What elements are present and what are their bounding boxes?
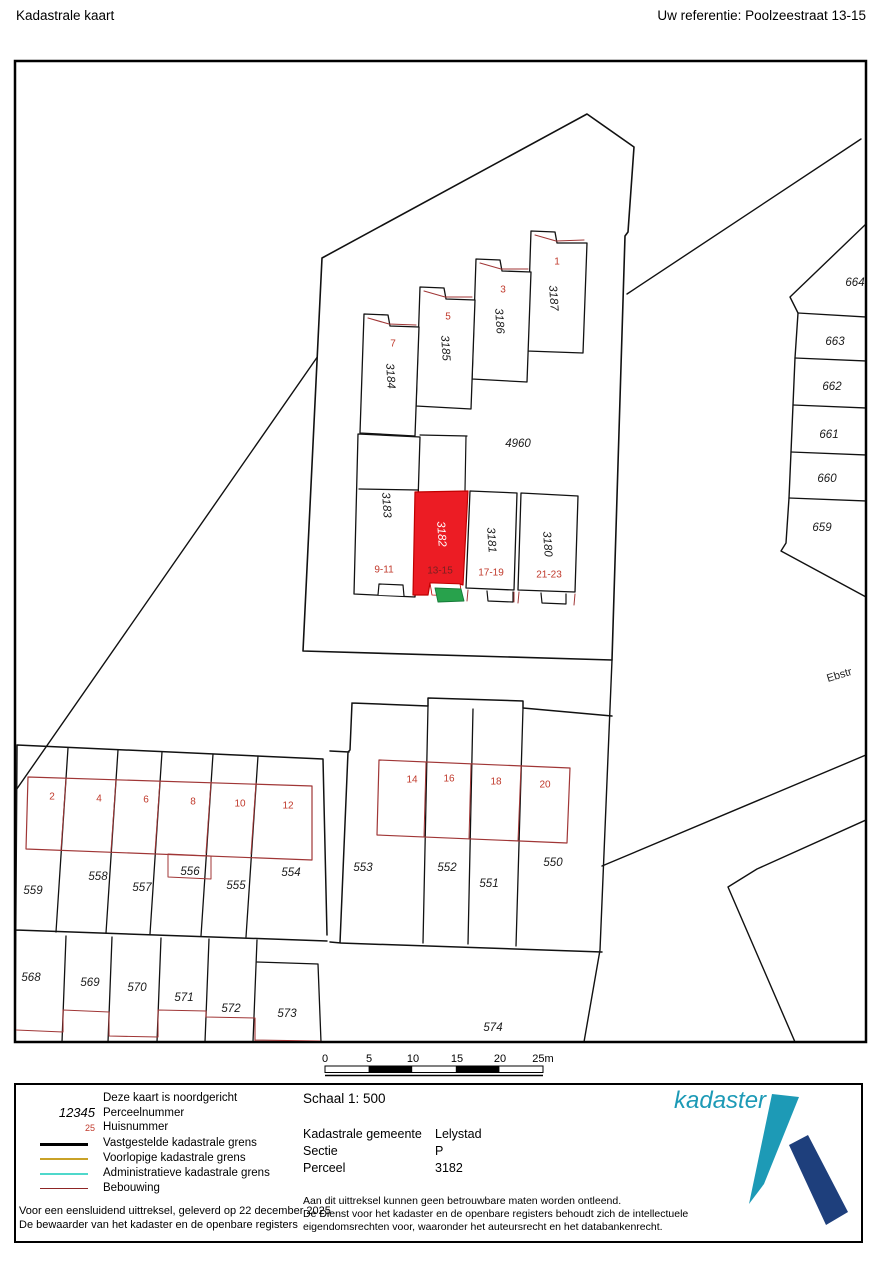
legend-north-note: Deze kaart is noordgericht [103, 1092, 237, 1104]
green-area [435, 588, 464, 602]
parcel-number: 557 [132, 882, 152, 894]
legend-established-label: Vastgestelde kadastrale grens [103, 1137, 257, 1149]
scale-bar: 0 5 10 15 20 25m [322, 1053, 554, 1076]
parcel-number: 3185 [438, 335, 452, 362]
house-number: 20 [539, 780, 551, 791]
parcel-number: 664 [845, 277, 864, 289]
parcel-number: 3183 [379, 492, 393, 519]
parcel-number: 559 [23, 885, 43, 897]
parcel-3183-step-notch [378, 584, 404, 596]
house-number: 21-23 [536, 570, 562, 581]
parcel-number: 558 [88, 871, 108, 883]
selected-house-number: 13-15 [427, 566, 453, 577]
info-row-label: Perceel [303, 1161, 345, 1175]
legend-housenumber-sample: 25 [40, 1123, 95, 1133]
house-number: 12 [282, 801, 294, 812]
scale-tick: 10 [407, 1053, 419, 1065]
parcel-number: 662 [822, 381, 842, 393]
scale-bar-track [325, 1066, 543, 1073]
info-row-label: Kadastrale gemeente [303, 1127, 422, 1141]
house-number: 3 [500, 285, 506, 296]
cadastral-map: Ebstr 1 3 5 7 3187 3186 3185 3184 3183 9… [0, 0, 881, 1269]
scale-label: Schaal 1: 500 [303, 1091, 386, 1106]
info-row-value: 3182 [435, 1161, 463, 1175]
house-number: 5 [445, 312, 451, 323]
info-row-label: Sectie [303, 1144, 338, 1158]
parcel-number: 554 [281, 867, 300, 879]
selected-parcel-number: 3182 [434, 521, 448, 548]
parcel-number: 3186 [492, 308, 506, 335]
parcel-number: 661 [819, 429, 838, 441]
scale-tick: 25m [532, 1053, 553, 1065]
parcel-number: 574 [483, 1022, 502, 1034]
legend-line-provisional [40, 1158, 88, 1160]
scale-bar-segment [456, 1066, 500, 1073]
scale-tick: 20 [494, 1053, 506, 1065]
house-number: 17-19 [478, 568, 504, 579]
parcel-number: 571 [174, 992, 193, 1004]
legend-administrative-label: Administratieve kadastrale grens [103, 1167, 270, 1179]
parcel-number: 3180 [540, 531, 554, 558]
info-row-value: P [435, 1144, 443, 1158]
legend-line-established [40, 1143, 88, 1146]
house-number: 16 [443, 774, 455, 785]
info-row-value: Lelystad [435, 1127, 482, 1141]
parcel-number: 3181 [484, 527, 498, 553]
certification-line: De bewaarder van het kadaster en de open… [19, 1219, 298, 1231]
house-number: 14 [406, 775, 418, 786]
scale-tick: 15 [451, 1053, 463, 1065]
parcel-number: 550 [543, 857, 563, 869]
legend-parcelnumber-sample: 12345 [40, 1105, 95, 1120]
disclaimer-line: eigendomsrechten voor, waaronder het aut… [303, 1221, 663, 1234]
house-number: 7 [390, 339, 396, 350]
kadaster-wordmark: kadaster [674, 1087, 766, 1115]
legend-building-label: Bebouwing [103, 1182, 160, 1194]
parcel-number: 3187 [546, 285, 560, 312]
parcel-number: 553 [353, 862, 373, 874]
disclaimer-line: Aan dit uittreksel kunnen geen betrouwba… [303, 1195, 621, 1208]
disclaimer-line: De Dienst voor het kadaster en de openba… [303, 1208, 688, 1221]
parcel-3180-step-notch [541, 593, 566, 604]
house-number: 1 [554, 257, 560, 268]
parcel-number: 663 [825, 336, 845, 348]
parcel-number: 573 [277, 1008, 297, 1020]
parcel-number: 556 [180, 866, 200, 878]
legend-provisional-label: Voorlopige kadastrale grens [103, 1152, 246, 1164]
parcel-number: 3184 [383, 363, 397, 389]
scale-tick: 5 [366, 1053, 372, 1065]
scale-bar-segment [369, 1066, 413, 1073]
footer-panel: Deze kaart is noordgericht 12345 Perceel… [14, 1083, 863, 1243]
legend-parcelnumber-label: Perceelnummer [103, 1107, 184, 1119]
house-number: 4 [96, 794, 102, 805]
house-number: 18 [490, 777, 502, 788]
parcel-3181-step-notch [487, 591, 513, 602]
house-number: 10 [234, 799, 246, 810]
house-number: 2 [49, 792, 55, 803]
parcel-number: 572 [221, 1003, 241, 1015]
parcel-number: 552 [437, 862, 457, 874]
parcel-number: 570 [127, 982, 147, 994]
scale-tick: 0 [322, 1053, 328, 1065]
parcel-number: 551 [479, 878, 498, 890]
legend-housenumber-label: Huisnummer [103, 1121, 168, 1133]
parcel-number: 569 [80, 977, 100, 989]
house-number: 6 [143, 795, 149, 806]
parcel-number: 4960 [505, 438, 531, 450]
parcel-number: 660 [817, 473, 837, 485]
parcel-number: 568 [21, 972, 41, 984]
legend-line-building [40, 1188, 88, 1189]
parcel-number: 555 [226, 880, 246, 892]
parcel-number: 659 [812, 522, 832, 534]
page: Kadastrale kaart Uw referentie: Poolzees… [0, 0, 881, 1269]
certification-line: Voor een eensluidend uittreksel, gelever… [19, 1205, 331, 1217]
house-number: 9-11 [374, 565, 394, 576]
house-number: 8 [190, 797, 196, 808]
legend-line-administrative [40, 1173, 88, 1175]
